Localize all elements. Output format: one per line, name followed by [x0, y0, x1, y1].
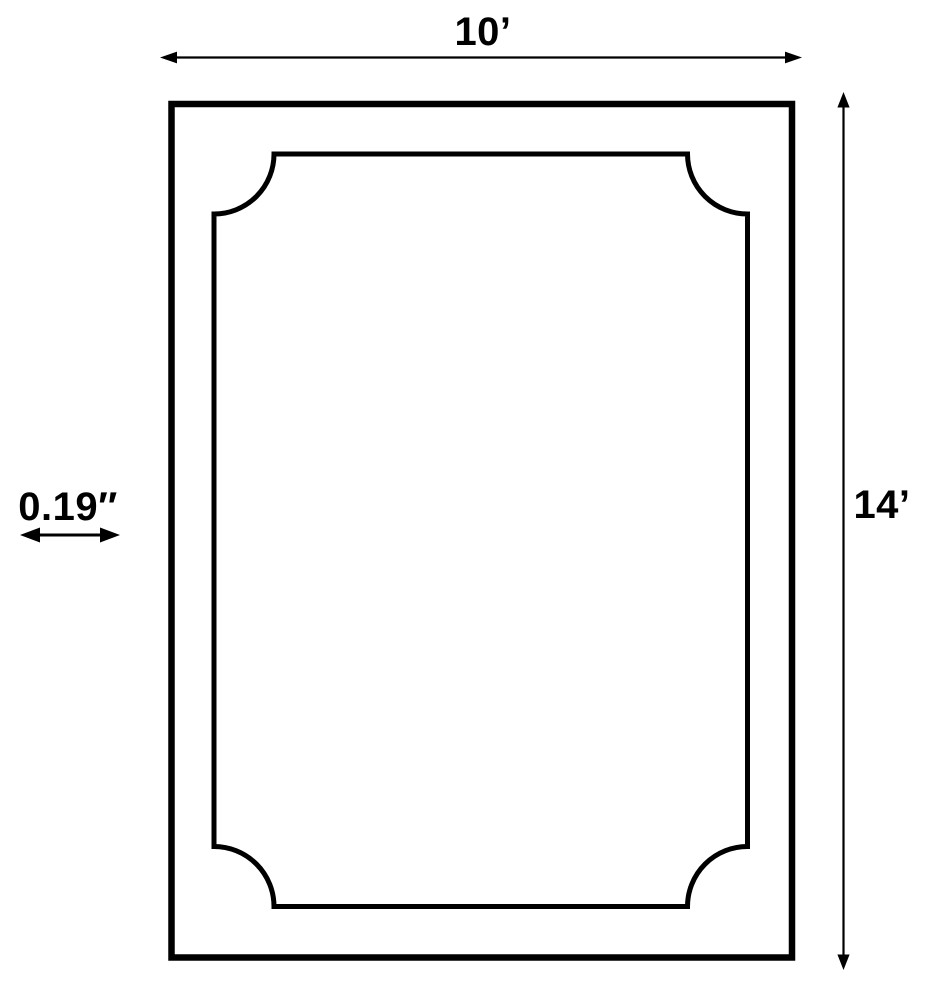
width-dimension-label: 10’ — [454, 10, 511, 54]
diagram-canvas: 10’ 14’ 0.19″ — [0, 0, 932, 990]
height-arrow-down-icon — [837, 955, 849, 971]
width-dimension: 10’ — [160, 10, 802, 63]
width-arrow-right-icon — [785, 52, 802, 64]
thickness-arrow-right-icon — [100, 528, 120, 543]
height-arrow-up-icon — [837, 92, 849, 108]
thickness-dimension: 0.19″ — [18, 485, 120, 543]
outer-border — [172, 104, 793, 958]
height-dimension: 14’ — [837, 92, 910, 970]
height-dimension-label: 14’ — [853, 483, 910, 527]
thickness-dimension-label: 0.19″ — [18, 485, 118, 529]
thickness-arrow-left-icon — [20, 528, 40, 543]
dimension-diagram: 10’ 14’ 0.19″ — [0, 0, 932, 990]
width-arrow-left-icon — [160, 52, 177, 64]
inner-scalloped-border — [214, 154, 748, 907]
